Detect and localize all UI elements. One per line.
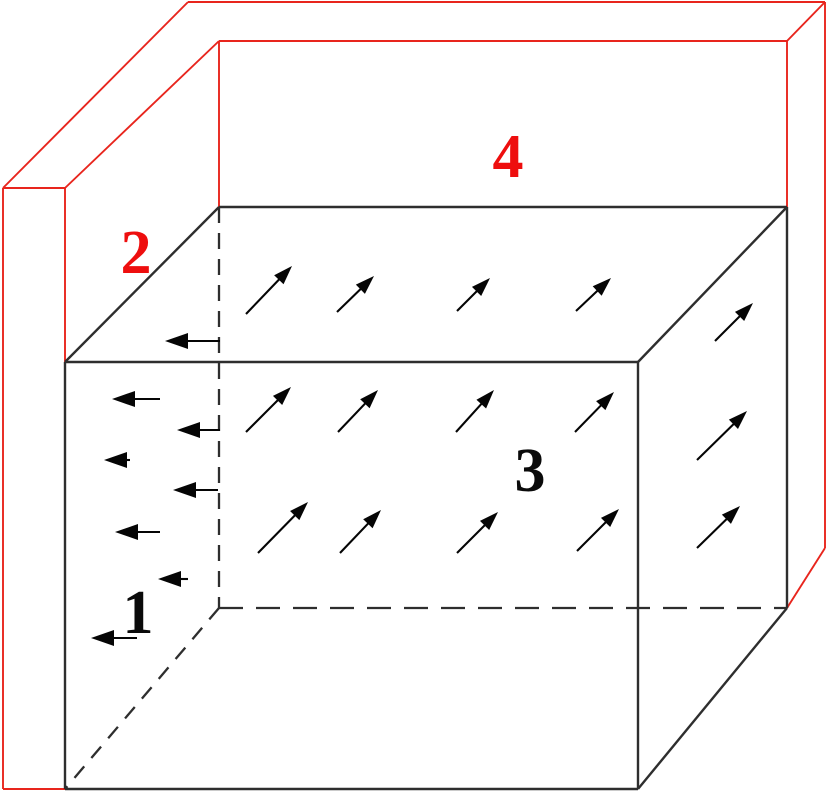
front-face-outward-arrows-shaft-1 (246, 399, 279, 432)
front-face-outward-arrows (246, 387, 619, 553)
leftward-arrows-head-3 (177, 422, 200, 438)
leftward-arrows (91, 333, 220, 646)
right-face-outward-arrows (697, 303, 753, 548)
leftward-arrows-head-5 (173, 482, 196, 498)
box-hidden-edges (65, 207, 787, 789)
left-wall-top-inner-edge (65, 41, 219, 188)
back-wall-right-corner-edge (787, 2, 825, 41)
front-face-outward-arrows-shaft-4 (575, 404, 602, 432)
front-face-outward-arrows-shaft-2 (338, 402, 366, 432)
leftward-arrows-head-4 (104, 452, 127, 468)
front-face-outward-arrows-shaft-5 (258, 514, 296, 553)
box-top-right-edge (638, 207, 787, 362)
flux-arrows (91, 266, 753, 646)
front-face-outward-arrows-shaft-6 (340, 522, 369, 553)
leftward-arrows-head-6 (115, 524, 138, 540)
top-face-outward-arrows-shaft-3 (457, 290, 478, 311)
box-edges (65, 207, 787, 789)
surface-label-1: 1 (123, 579, 154, 647)
right-face-outward-arrows-shaft-2 (697, 423, 735, 460)
leftward-arrows-head-7 (158, 571, 181, 587)
right-face-outward-arrows-shaft-1 (715, 315, 741, 341)
leftward-arrows-head-8 (91, 630, 114, 646)
leftward-arrows-head-2 (112, 391, 135, 407)
surface-label-3: 3 (515, 437, 546, 505)
back-wall-right-bottom-edge (787, 548, 825, 608)
surface-label-2: 2 (121, 219, 152, 287)
top-face-outward-arrows (246, 266, 611, 314)
top-face-outward-arrows-shaft-2 (337, 288, 362, 312)
front-face-outward-arrows-shaft-7 (457, 524, 486, 553)
front-face-outward-arrows-shaft-8 (577, 521, 607, 551)
diagram-canvas: 1234 (0, 0, 828, 792)
top-face-outward-arrows-shaft-4 (576, 290, 599, 311)
surface-label-4: 4 (493, 123, 524, 191)
leftward-arrows-head-1 (165, 333, 188, 349)
top-face-outward-arrows-shaft-1 (246, 278, 280, 314)
box-wall-diagram: 1234 (0, 0, 828, 792)
front-face-outward-arrows-shaft-3 (456, 403, 483, 432)
surface-labels: 1234 (121, 123, 546, 647)
box-bottom-right-edge (638, 608, 787, 789)
right-face-outward-arrows-shaft-3 (697, 518, 728, 548)
